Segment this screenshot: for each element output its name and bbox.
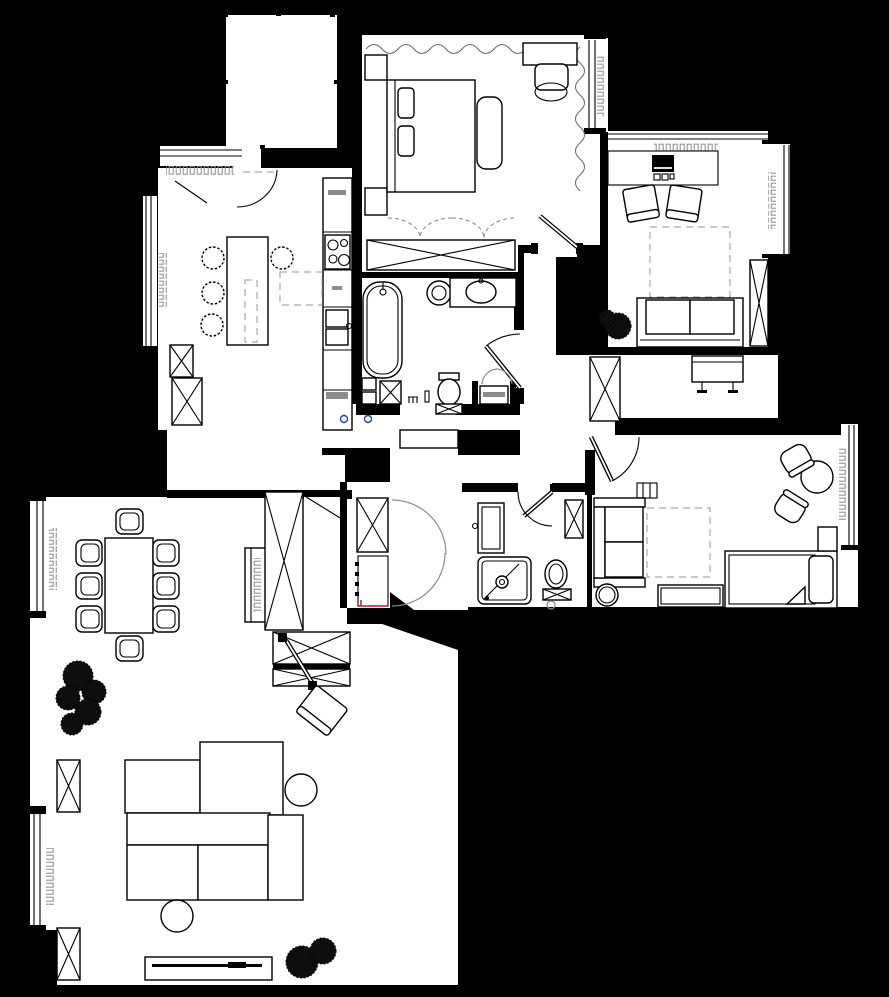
bar-stool bbox=[202, 282, 224, 304]
radiator-icon bbox=[768, 172, 776, 229]
nightstand bbox=[365, 55, 387, 80]
cabinet-handle bbox=[326, 392, 348, 399]
crossed-wardrobe bbox=[590, 357, 620, 421]
single-bed bbox=[725, 551, 837, 608]
floor-plan-canvas bbox=[0, 0, 889, 997]
monitor-icon bbox=[652, 155, 674, 172]
round-side-table bbox=[161, 900, 193, 932]
kitchen-entry-gap bbox=[233, 148, 261, 168]
crossed-cabinet bbox=[565, 500, 583, 538]
modular-sofa bbox=[125, 742, 303, 900]
crossed-cabinet bbox=[57, 760, 80, 812]
crossed-cabinet bbox=[357, 498, 388, 552]
toilet-brush-icon bbox=[408, 397, 418, 403]
floor-plan-drawing bbox=[0, 0, 889, 997]
cabinet-handle bbox=[328, 190, 346, 195]
nightstand bbox=[818, 527, 837, 551]
drain-icon bbox=[496, 576, 508, 588]
built-in-wardrobe bbox=[367, 240, 515, 270]
sofa bbox=[637, 298, 743, 347]
bar-stool bbox=[201, 314, 223, 336]
crossed-cabinet bbox=[57, 928, 80, 980]
radiator-icon bbox=[49, 528, 57, 590]
crossed-cabinet bbox=[172, 378, 202, 425]
cabinet-handle bbox=[332, 286, 342, 290]
crossed-cabinet bbox=[170, 345, 193, 377]
second-bedroom-door-gap bbox=[589, 420, 615, 436]
radiator-icon bbox=[159, 253, 167, 308]
dining-table bbox=[105, 538, 153, 633]
bar-stool bbox=[202, 247, 224, 269]
crossed-cabinet bbox=[380, 381, 401, 404]
double-bed bbox=[387, 80, 475, 192]
radiator-icon bbox=[654, 143, 718, 151]
sink-bowl bbox=[326, 310, 348, 327]
bathroom-door-gap bbox=[514, 330, 528, 388]
bed-bench bbox=[477, 97, 502, 169]
balcony-floor bbox=[226, 15, 337, 148]
bathtub bbox=[363, 282, 402, 378]
lounge-chair bbox=[622, 184, 659, 222]
radiator-icon bbox=[46, 848, 55, 905]
studio-window-band bbox=[764, 143, 790, 257]
door-mat bbox=[400, 430, 458, 448]
pillow bbox=[398, 126, 414, 156]
pillow bbox=[809, 556, 833, 603]
radiator-icon bbox=[597, 56, 605, 116]
sofa-bed bbox=[594, 498, 645, 587]
kitchen-island bbox=[227, 237, 268, 345]
shower-tray bbox=[478, 557, 531, 604]
lounge-chair bbox=[666, 185, 703, 223]
round-basin bbox=[427, 281, 451, 305]
bar-stool bbox=[271, 247, 293, 269]
toilet bbox=[436, 373, 462, 414]
nightstand bbox=[365, 188, 387, 215]
desk bbox=[523, 43, 577, 65]
tv-bench bbox=[145, 957, 272, 980]
studio-window-top bbox=[608, 131, 768, 143]
media-sideboard bbox=[245, 548, 267, 622]
round-side-table bbox=[285, 774, 317, 806]
counter-basin bbox=[466, 281, 496, 303]
kitchen-window-left bbox=[143, 196, 157, 346]
drawer-chest bbox=[658, 585, 723, 607]
pillow bbox=[398, 88, 414, 118]
crossed-cabinet bbox=[750, 260, 768, 346]
radiator-icon bbox=[839, 448, 847, 520]
radiator-icon bbox=[166, 166, 234, 175]
sink-bowl bbox=[326, 329, 348, 345]
